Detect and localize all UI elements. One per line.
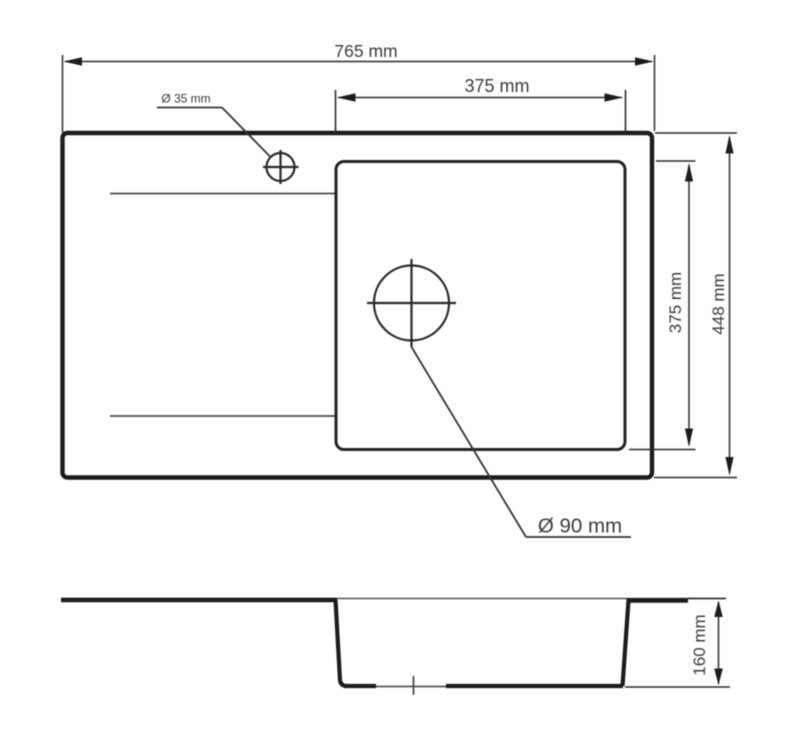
svg-text:160 mm: 160 mm [690,614,709,675]
svg-text:375 mm: 375 mm [666,272,685,333]
svg-text:Ø 35 mm: Ø 35 mm [161,92,210,106]
svg-text:Ø 90 mm: Ø 90 mm [538,515,622,538]
svg-text:765 mm: 765 mm [334,41,397,61]
svg-text:448 mm: 448 mm [709,273,728,334]
svg-text:375 mm: 375 mm [464,76,529,96]
